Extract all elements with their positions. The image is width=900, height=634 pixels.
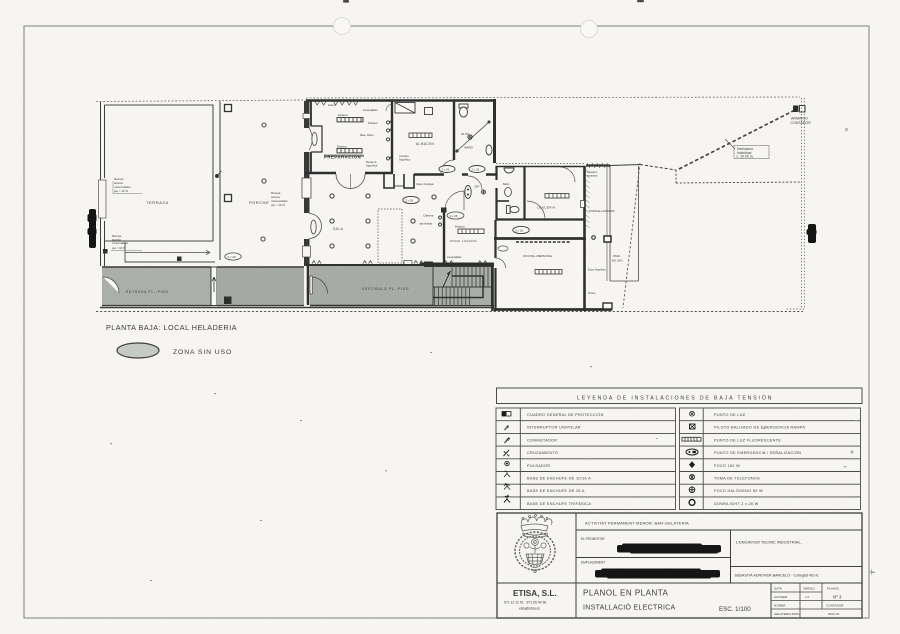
- svg-text:2 x 26: 2 x 26: [472, 168, 480, 172]
- svg-text:CUADRO GENERAL DE PROTECCIÓ: CUADRO GENERAL DE PROTECCIÓN: [527, 412, 604, 417]
- svg-text:BASE DE ENCHUFE DE 10/16: BASE DE ENCHUFE DE 10/16 A: [527, 477, 591, 481]
- svg-text:frigorifico: frigorifico: [399, 158, 411, 162]
- svg-text:ZONA LAVADO: ZONA LAVADO: [450, 239, 477, 243]
- svg-text:FOCO HALÓGENO 50 W: FOCO HALÓGENO 50 W: [714, 488, 763, 493]
- svg-text:INTERRUPTOR UNIPOLAR: INTERRUPTOR UNIPOLAR: [527, 426, 581, 430]
- svg-text:Lavavajillas: Lavavajillas: [447, 255, 462, 259]
- svg-text:LEYENDA DE INSTALACIONES DE: LEYENDA DE INSTALACIONES DE BAJA TENSIÓN: [577, 395, 773, 402]
- svg-text:pte < 10 %: pte < 10 %: [112, 246, 126, 250]
- svg-text:minusvalidos: minusvalidos: [112, 241, 129, 245]
- svg-text:Baño: Baño: [503, 182, 510, 186]
- svg-text:TERRAZA: TERRAZA: [146, 200, 169, 205]
- svg-text:L: 20.00 m.: L: 20.00 m.: [737, 155, 754, 159]
- svg-text:VERSIO: VERSIO: [803, 587, 815, 591]
- svg-text:Estanco: Estanco: [455, 225, 465, 229]
- svg-text:971 12 11 91 - 971 65 94 66: 971 12 11 91 - 971 65 94 66: [504, 601, 546, 605]
- svg-text:Lavavajillas: Lavavajillas: [363, 108, 378, 112]
- svg-text:L'ENGINYER TECNIC INDUSTRIAL: L'ENGINYER TECNIC INDUSTRIAL.: [736, 540, 802, 545]
- svg-text:#1.50: #1.50: [461, 132, 469, 136]
- svg-text:DOWNLIGHT 2 x 26 W: DOWNLIGHT 2 x 26 W: [714, 502, 759, 506]
- svg-text:pte < 10 %: pte < 10 %: [271, 203, 285, 207]
- svg-text:AGOSER: AGOSER: [774, 595, 788, 599]
- svg-text:Horno: Horno: [328, 103, 336, 107]
- svg-text:ALMACEN: ALMACEN: [416, 142, 435, 146]
- svg-text:EMPLAÇAMENT: EMPLAÇAMENT: [581, 561, 605, 565]
- svg-text:CRUZAMIENTO: CRUZAMIENTO: [527, 451, 558, 455]
- svg-text:EL PROMOTOR: EL PROMOTOR: [581, 537, 605, 541]
- svg-text:SIN USO: SIN USO: [612, 259, 623, 263]
- svg-text:ZONA SIN USO: ZONA SIN USO: [173, 349, 232, 356]
- svg-text:PORCHE: PORCHE: [249, 200, 269, 205]
- svg-text:OFICINA--PERSONAL: OFICINA--PERSONAL: [523, 254, 553, 258]
- svg-text:CONMUTADOR: CONMUTADOR: [527, 438, 557, 442]
- svg-text:frigorifica: frigorifica: [366, 164, 378, 168]
- svg-text:ACTIVITAT PERMANENT MENOR:: ACTIVITAT PERMANENT MENOR: BAR-GELATERIA: [585, 521, 689, 526]
- svg-text:etisa@etisa.es: etisa@etisa.es: [519, 607, 540, 611]
- svg-text:2 x 26: 2 x 26: [515, 229, 524, 233]
- svg-text:INICI-01: INICI-01: [828, 612, 840, 616]
- svg-text:DATA: DATA: [774, 587, 783, 591]
- svg-text:PUNTO DE LUZ FLUORESCENTE: PUNTO DE LUZ FLUORESCENTE: [714, 438, 781, 442]
- svg-text:GELATERIA.DWG: GELATERIA.DWG: [774, 612, 800, 616]
- svg-text:Pasteur: Pasteur: [368, 121, 378, 125]
- svg-text:TOMA DE TELEFONOS: TOMA DE TELEFONOS: [714, 477, 760, 481]
- svg-text:PUNTO DE LUZ: PUNTO DE LUZ: [714, 413, 746, 417]
- svg-text:LENCERIA: LENCERIA: [537, 206, 556, 210]
- svg-text:PLANOL EN PLANTA: PLANOL EN PLANTA: [583, 589, 669, 598]
- svg-text:PILOTO BALIZADO DE EMERGENC: PILOTO BALIZADO DE EMERGENCIA RAMPA: [714, 426, 805, 430]
- svg-text:BASE DE ENCHUFE TRIFÁSICA: BASE DE ENCHUFE TRIFÁSICA: [527, 502, 591, 506]
- svg-text:Maq. Hielo: Maq. Hielo: [360, 133, 374, 137]
- svg-text:pte < 10 %: pte < 10 %: [114, 189, 128, 193]
- svg-text:CONTADOR: CONTADOR: [791, 121, 812, 125]
- svg-text:Cafetera: Cafetera: [423, 214, 434, 218]
- svg-text:secadora: secadora: [587, 175, 598, 178]
- svg-text:Expo frigorifico: Expo frigorifico: [588, 268, 606, 272]
- svg-text:BAÑO: BAÑO: [465, 145, 474, 150]
- svg-text:ARMARIO: ARMARIO: [791, 117, 808, 121]
- svg-text:PLANOL: PLANOL: [827, 587, 839, 591]
- svg-text:VESTIBULO PL--PISO: VESTIBULO PL--PISO: [362, 287, 409, 291]
- svg-text:SALA: SALA: [333, 227, 344, 231]
- svg-text:NOMBR: NOMBR: [774, 604, 786, 608]
- svg-text:2 x 26: 2 x 26: [405, 199, 414, 203]
- svg-text:PULSADOR: PULSADOR: [527, 464, 550, 468]
- svg-text:ENTRADA PL--PISO: ENTRADA PL--PISO: [126, 290, 169, 294]
- svg-text:DET: DET: [475, 185, 481, 189]
- svg-text:SEBASTIÀ ADROVER BARCELÓ -: SEBASTIÀ ADROVER BARCELÓ - Collegiat 401…: [735, 573, 820, 578]
- svg-text:v.4: v.4: [805, 595, 809, 599]
- svg-text:alumbrado: alumbrado: [420, 222, 433, 226]
- svg-text:ETISA, S.L.: ETISA, S.L.: [513, 589, 557, 598]
- svg-text:ESC. 1/100: ESC. 1/100: [719, 606, 751, 613]
- svg-text:Cajon bodega: Cajon bodega: [416, 182, 434, 186]
- svg-text:2 x 26: 2 x 26: [228, 255, 237, 259]
- svg-text:Estanco: Estanco: [337, 145, 348, 149]
- svg-text:PUNTO DE EMERGENCIA / SEÑA: PUNTO DE EMERGENCIA / SEÑALIZACIÓN: [714, 450, 801, 455]
- svg-text:BASE DE ENCHUFE DE 25 A: BASE DE ENCHUFE DE 25 A: [527, 489, 585, 493]
- svg-text:FOCO 150 W: FOCO 150 W: [714, 464, 740, 468]
- svg-text:Estanco: Estanco: [338, 113, 349, 117]
- svg-text:Nº 3: Nº 3: [833, 595, 842, 600]
- svg-text:INSTALLACIÓ ELECTRICA: INSTALLACIÓ ELECTRICA: [583, 603, 676, 612]
- svg-text:PORCHE-LAVADERO: PORCHE-LAVADERO: [589, 209, 615, 213]
- svg-text:2 x 26: 2 x 26: [442, 168, 450, 172]
- svg-text:Termo: Termo: [588, 291, 596, 295]
- svg-text:2 x 26: 2 x 26: [450, 214, 458, 218]
- svg-text:CONTADOR: CONTADOR: [826, 604, 844, 608]
- svg-text:PLANTA BAJA: LOCAL HELADERI: PLANTA BAJA: LOCAL HELADERIA: [106, 323, 237, 332]
- svg-text:PASO: PASO: [613, 254, 620, 258]
